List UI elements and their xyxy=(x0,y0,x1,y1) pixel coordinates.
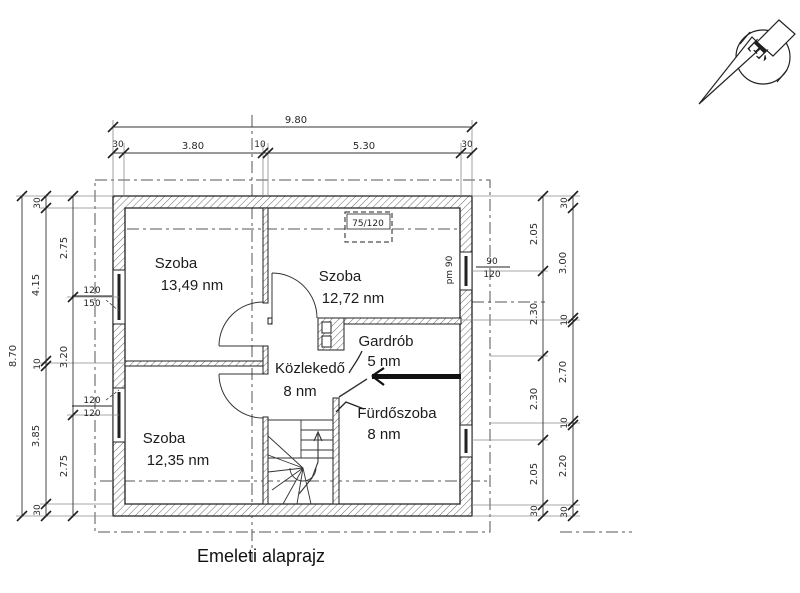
room-label-szoba2-area: 12,72 nm xyxy=(322,290,385,307)
win-left-bot-width: 120 xyxy=(83,396,100,406)
dim-top-seg-2: 10 xyxy=(254,140,266,150)
label-window-left-top: 120 150 xyxy=(72,286,119,311)
roof-window-label: 75/120 xyxy=(352,219,384,229)
north-arrow: É xyxy=(699,20,795,104)
wall-corridor-upper xyxy=(263,208,268,303)
new-heavy-wall xyxy=(372,368,461,385)
door-szoba1 xyxy=(219,302,263,346)
wall-corridor-middle xyxy=(263,346,268,374)
dim-chain-left: 8.70 30 4.15 10 3.85 30 2.75 3.20 2.75 xyxy=(8,191,78,521)
room-label-szoba3-name: Szoba xyxy=(143,430,186,447)
win-right-height: 120 xyxy=(483,270,500,280)
win-right-width: 90 xyxy=(486,257,498,267)
dim-top-seg-4: 30 xyxy=(461,140,473,150)
dim-left-inner-2: 2.75 xyxy=(59,455,70,477)
dim-right-inner-2: 2.30 xyxy=(529,388,540,410)
room-label-szoba2-name: Szoba xyxy=(319,268,362,285)
dim-right-inner-3: 2.05 xyxy=(529,463,540,485)
window-right-small xyxy=(460,252,472,290)
door-bathroom xyxy=(339,379,367,397)
dim-left-inner-1: 3.20 xyxy=(59,346,70,368)
floorplan-page: 9.80 30 3.80 10 5.30 30 8.70 30 4.15 10 … xyxy=(0,0,800,593)
dim-right-outer-6: 30 xyxy=(560,506,570,518)
label-window-right: 90 120 pm 90 xyxy=(445,255,510,284)
dim-right-outer-0: 30 xyxy=(560,197,570,209)
dim-right-outer-2: 10 xyxy=(560,314,570,326)
win-right-sill-height: pm 90 xyxy=(445,255,455,284)
dim-left-mid-3: 3.85 xyxy=(31,425,42,447)
dim-right-inner-0: 2.05 xyxy=(529,223,540,245)
dim-left-mid-4: 30 xyxy=(33,504,43,516)
wall-szoba2-south xyxy=(344,318,461,324)
wall-bathroom-west xyxy=(333,398,339,504)
dim-top-seg-0: 30 xyxy=(112,140,124,150)
room-label-gardrob-name: Gardrób xyxy=(358,333,413,350)
room-label-szoba1-area: 13,49 nm xyxy=(161,277,224,294)
dim-left-overall: 8.70 xyxy=(8,345,19,367)
door-szoba3 xyxy=(219,374,263,418)
dim-top-overall: 9.80 xyxy=(285,115,307,126)
floor-plan-canvas: 9.80 30 3.80 10 5.30 30 8.70 30 4.15 10 … xyxy=(0,0,800,593)
dim-chain-top: 9.80 30 3.80 10 5.30 30 xyxy=(108,115,477,158)
dim-left-mid-1: 4.15 xyxy=(31,274,42,296)
extension-lines xyxy=(16,120,580,516)
room-label-furdoszoba-name: Fürdőszoba xyxy=(357,405,437,422)
dim-top-seg-3: 5.30 xyxy=(353,141,375,152)
dim-right-outer-1: 3.00 xyxy=(558,252,569,274)
dim-right-inner-4: 30 xyxy=(530,505,540,517)
room-label-szoba3-area: 12,35 nm xyxy=(147,452,210,469)
chimney-block xyxy=(318,318,344,350)
dim-left-inner-0: 2.75 xyxy=(59,237,70,259)
staircase xyxy=(268,420,333,504)
win-left-top-width: 120 xyxy=(83,286,100,296)
window-right-lower xyxy=(460,425,472,457)
dim-left-mid-0: 30 xyxy=(33,197,43,209)
wall-left-rooms-divider xyxy=(125,361,263,366)
win-left-top-height: 150 xyxy=(83,299,100,309)
dim-left-mid-2: 10 xyxy=(33,358,43,370)
room-label-furdoszoba-area: 8 nm xyxy=(367,426,400,443)
dim-right-outer-3: 2.70 xyxy=(558,361,569,383)
stair-direction-arrow xyxy=(299,432,322,494)
dim-right-outer-5: 2.20 xyxy=(558,455,569,477)
room-label-gardrob-area: 5 nm xyxy=(367,353,400,370)
wall-corridor-lower xyxy=(263,417,268,504)
room-label-kozlekedo-area: 8 nm xyxy=(283,383,316,400)
page-title: Emeleti alaprajz xyxy=(197,546,325,566)
eaves-outline xyxy=(95,180,632,532)
leader-gardrob xyxy=(349,351,362,373)
dim-right-inner-1: 2.30 xyxy=(529,303,540,325)
dim-top-seg-1: 3.80 xyxy=(182,141,204,152)
door-szoba2 xyxy=(272,273,317,318)
room-label-kozlekedo-name: Közlekedő xyxy=(275,360,345,377)
room-label-szoba1-name: Szoba xyxy=(155,255,198,272)
dim-right-outer-4: 10 xyxy=(560,417,570,429)
wall-stub xyxy=(268,318,272,324)
win-left-bot-height: 120 xyxy=(83,409,100,419)
